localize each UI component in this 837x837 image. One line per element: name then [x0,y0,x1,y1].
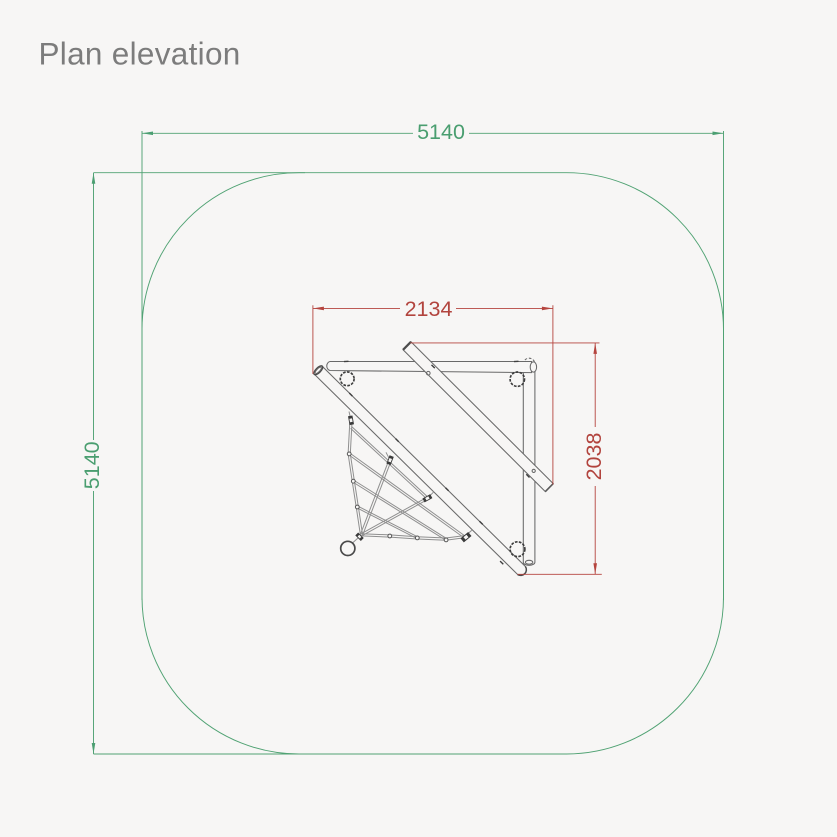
svg-text:5140: 5140 [80,441,104,489]
svg-text:Plan elevation: Plan elevation [39,36,241,72]
svg-text:2134: 2134 [405,297,453,321]
svg-text:2038: 2038 [582,433,606,481]
svg-text:5140: 5140 [417,120,465,144]
